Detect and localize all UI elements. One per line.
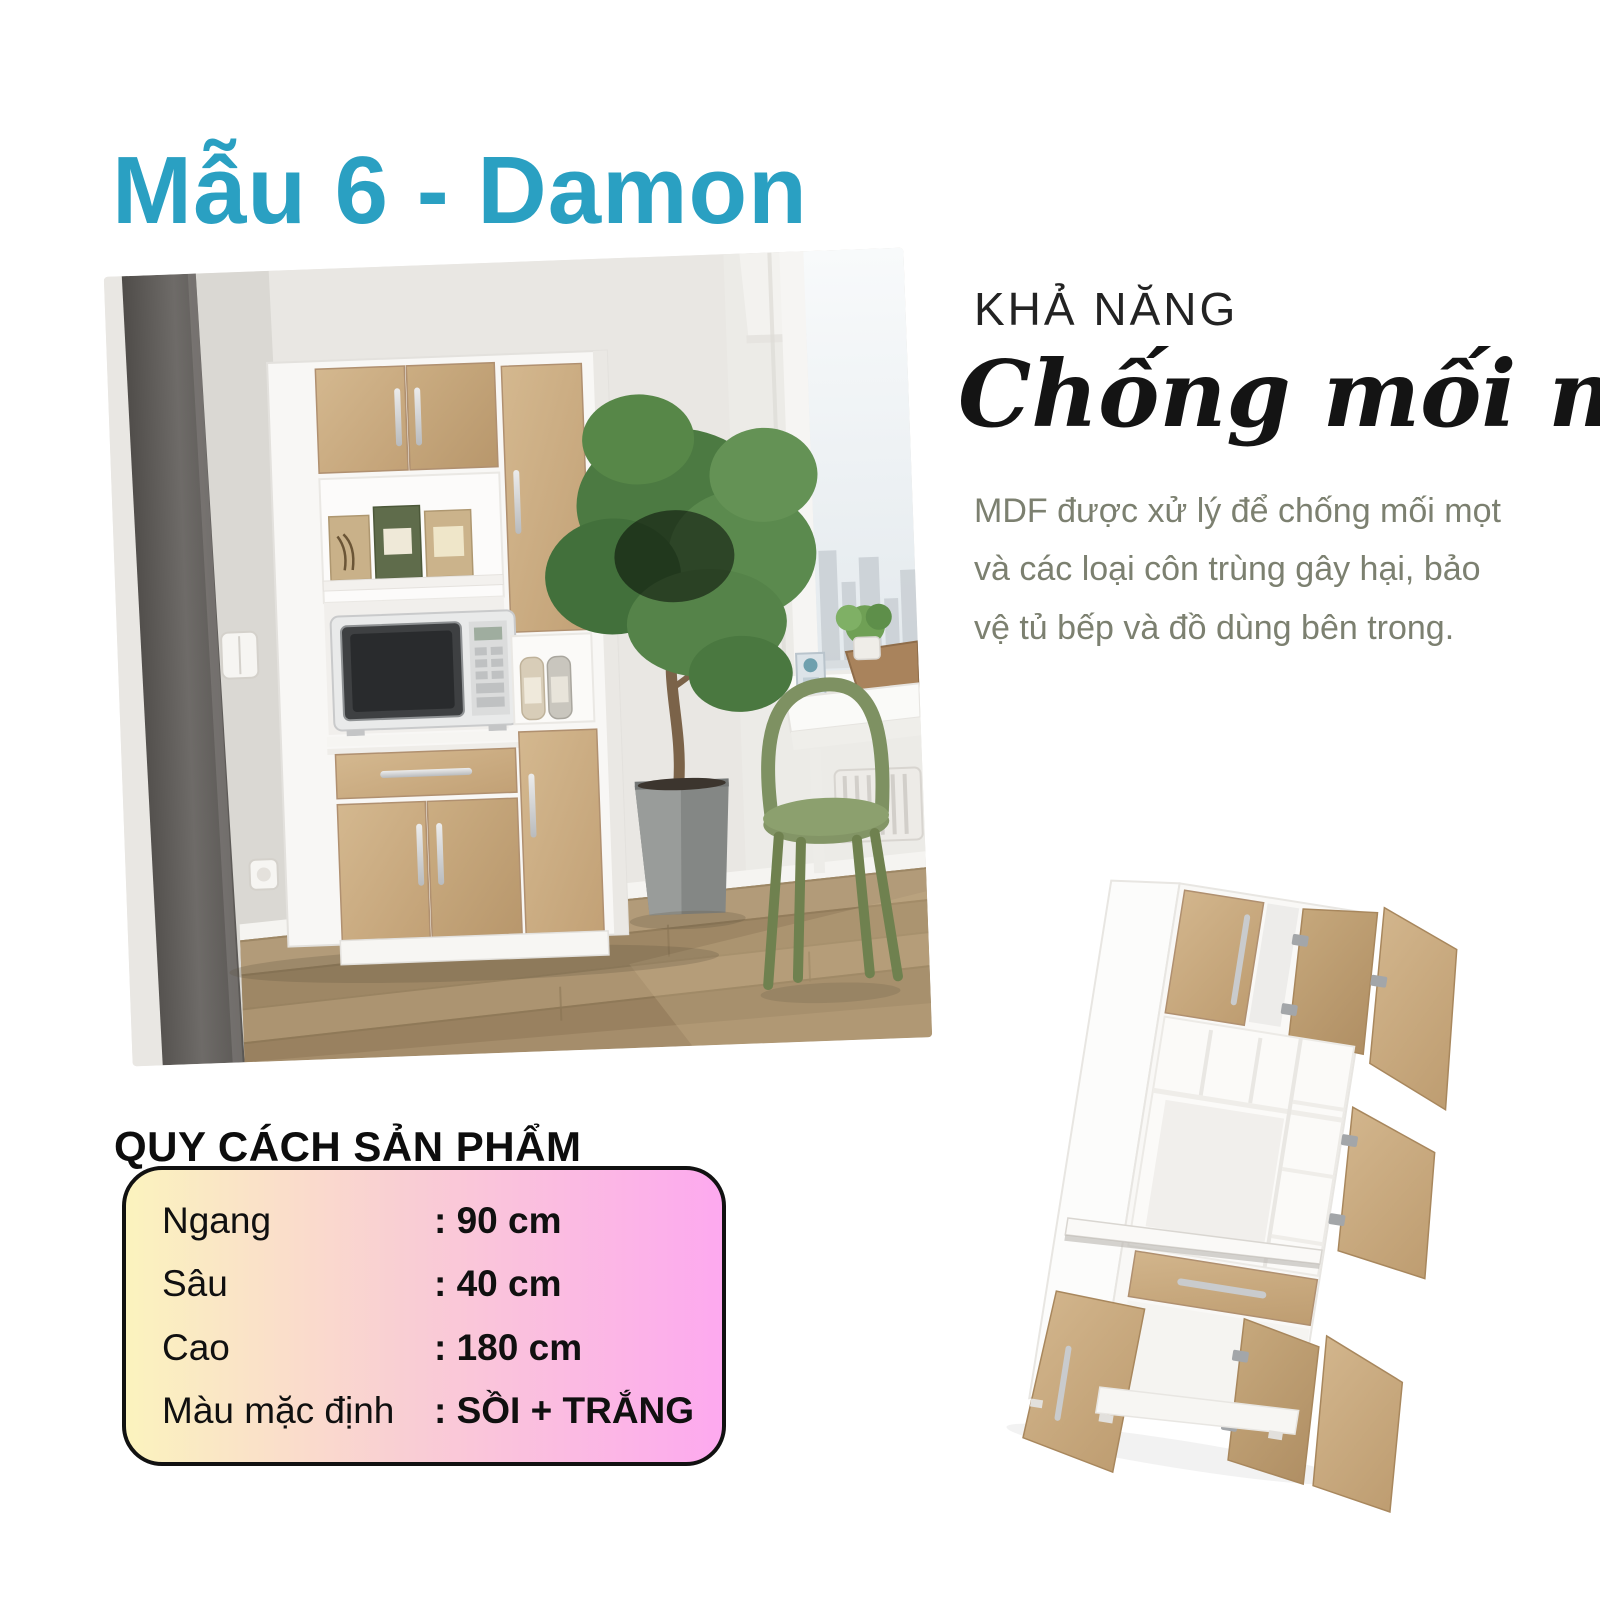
spec-row-width: Ngang : 90 cm [162, 1200, 702, 1242]
spec-label: Cao [162, 1327, 434, 1369]
feature-section: KHẢ NĂNG Chống mối mọt MDF được xử lý để… [958, 282, 1558, 657]
power-outlet [249, 859, 278, 890]
spec-row-color: Màu mặc định : SỒI + TRẮNG [162, 1390, 702, 1432]
feature-headline: Chống mối mọt [958, 342, 1558, 448]
feature-body: MDF được xử lý để chống mối mọt và các l… [974, 482, 1519, 657]
spec-value: : 90 cm [434, 1200, 562, 1242]
spec-value: : SỒI + TRẮNG [434, 1390, 694, 1432]
page-title: Mẫu 6 - Damon [112, 136, 808, 246]
room-photo [104, 248, 932, 1067]
light-switch [221, 632, 259, 679]
spec-label: Màu mặc định [162, 1390, 434, 1432]
spec-value: : 180 cm [434, 1327, 582, 1369]
feature-kicker: KHẢ NĂNG [958, 282, 1558, 336]
specs-heading: QUY CÁCH SẢN PHẨM [114, 1123, 581, 1171]
open-cabinet-art [950, 840, 1490, 1540]
room-photo-art [104, 248, 932, 1067]
spec-label: Ngang [162, 1200, 434, 1242]
spec-value: : 40 cm [434, 1263, 562, 1305]
microwave [330, 610, 518, 737]
spec-row-height: Cao : 180 cm [162, 1327, 702, 1369]
product-open-illustration [950, 840, 1490, 1540]
spec-label: Sâu [162, 1263, 434, 1305]
specs-card: Ngang : 90 cm Sâu : 40 cm Cao : 180 cm M… [122, 1166, 726, 1466]
spec-row-depth: Sâu : 40 cm [162, 1263, 702, 1305]
poster-page: Mẫu 6 - Damon [0, 0, 1600, 1600]
